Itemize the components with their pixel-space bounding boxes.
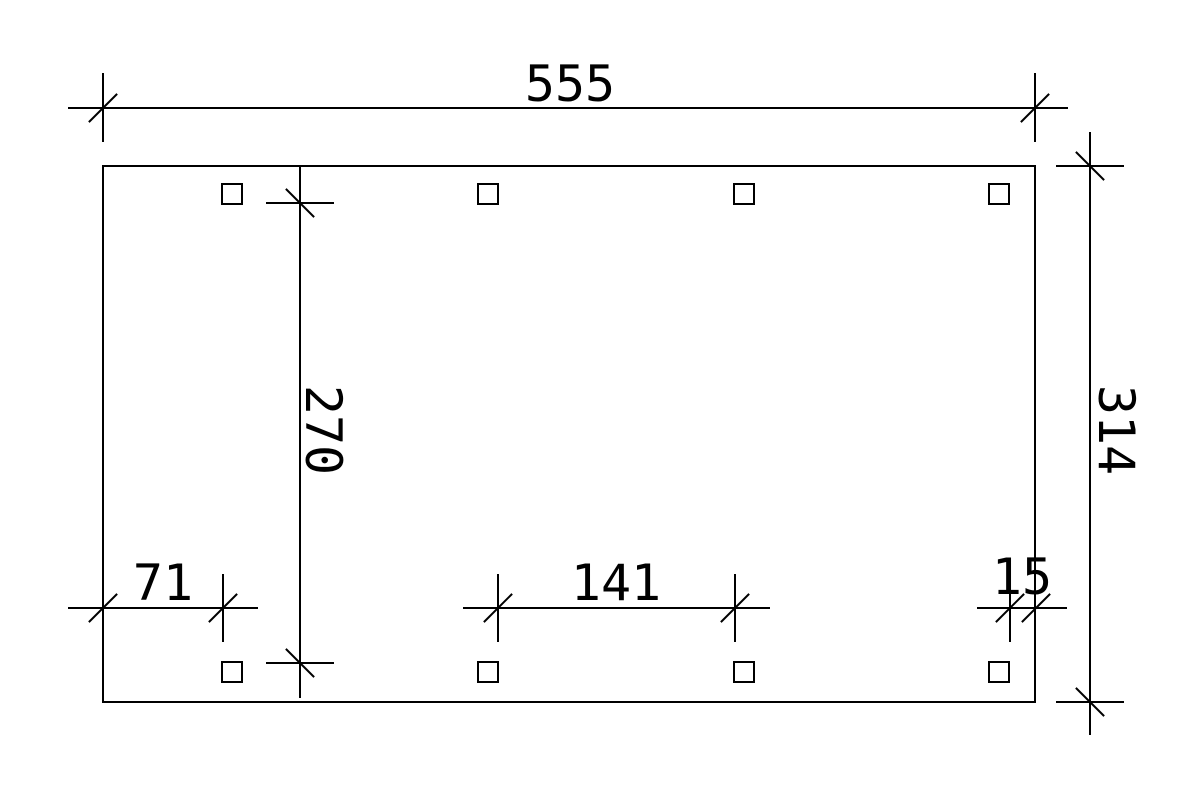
technical-drawing-canvas: 555 314 270 71 141 15 <box>0 0 1200 800</box>
post-marker-top-4 <box>988 183 1010 205</box>
dim-bottom-middle-label: 141 <box>571 558 661 608</box>
dim-inner-label: 270 <box>298 385 348 475</box>
post-marker-bottom-2 <box>477 661 499 683</box>
dim-top-label: 555 <box>525 59 615 109</box>
post-marker-top-3 <box>733 183 755 205</box>
dim-bottom-right-label: 15 <box>992 552 1052 602</box>
post-marker-bottom-3 <box>733 661 755 683</box>
post-marker-top-2 <box>477 183 499 205</box>
post-marker-bottom-4 <box>988 661 1010 683</box>
frame-outline <box>102 165 1036 703</box>
post-marker-bottom-1 <box>221 661 243 683</box>
dim-bottom-right-line <box>977 607 1067 609</box>
dim-bottom-left-label: 71 <box>133 558 193 608</box>
post-marker-top-1 <box>221 183 243 205</box>
dim-right-label: 314 <box>1091 385 1141 475</box>
